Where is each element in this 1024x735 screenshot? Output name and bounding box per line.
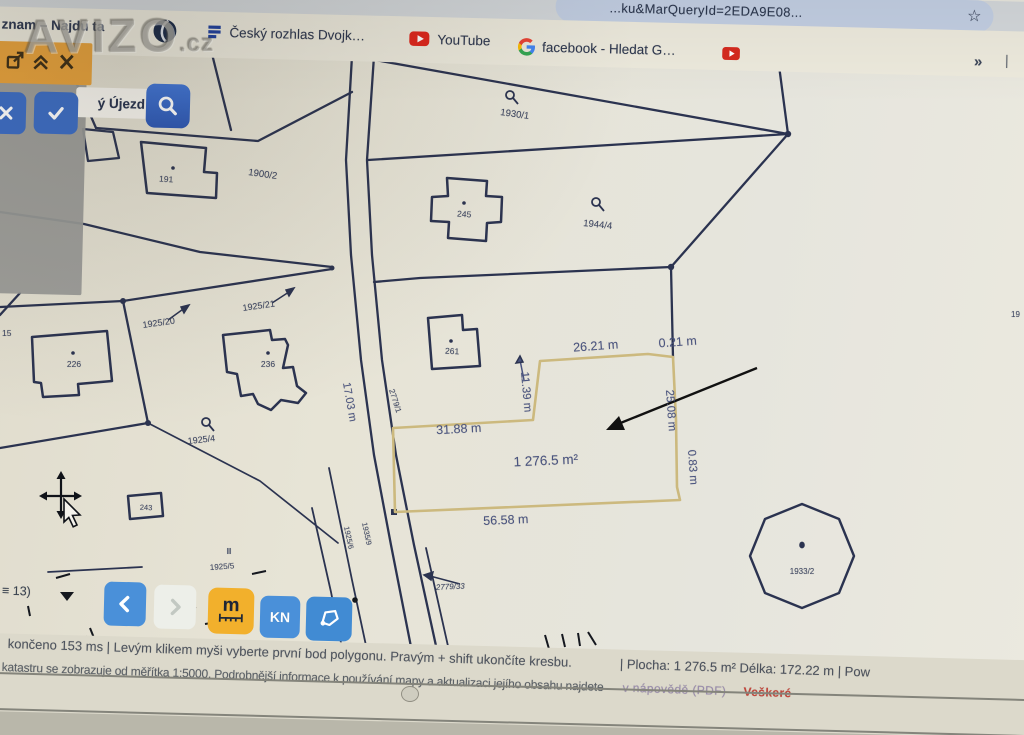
vertex-dots	[71, 131, 805, 603]
search-button[interactable]	[145, 83, 190, 128]
parcel-label-19: 19	[1011, 310, 1020, 319]
google-icon	[517, 37, 536, 56]
parcel-boundaries	[0, 50, 788, 655]
close-icon	[0, 102, 17, 125]
bookmark-label: facebook - Hledat G…	[542, 40, 676, 58]
boundary	[212, 54, 231, 130]
parcel-label-1930-1: 1930/1	[500, 107, 530, 122]
building-label-226: 226	[67, 359, 81, 369]
mouse-pointer-icon	[64, 499, 80, 527]
bookmark-star-icon[interactable]: ☆	[967, 6, 994, 27]
building-label-243: 243	[140, 503, 153, 512]
building-191	[141, 142, 217, 198]
parcel-label-1925-21: 1925/21	[242, 299, 276, 313]
bookmark-cesky-rozhlas[interactable]: Český rozhlas Dvojk…	[206, 23, 365, 45]
building-label-245: 245	[457, 209, 472, 220]
open-external-icon[interactable]	[4, 49, 27, 77]
bookmark-seznam[interactable]: znam – Najdu ta	[1, 17, 104, 35]
map-toolbar-orange	[0, 41, 92, 86]
boundary	[368, 134, 788, 160]
boundary	[374, 267, 671, 282]
check-icon	[45, 102, 68, 125]
boundary	[48, 567, 142, 572]
address-text: ...ku&MarQueryId=2EDA9E08...	[555, 0, 967, 24]
scrollbar-knob[interactable]	[401, 686, 419, 702]
pointer-arrow	[606, 368, 757, 430]
bookmarks-separator: |	[1005, 52, 1009, 68]
move-cursor-icon	[39, 471, 82, 527]
confirm-button[interactable]	[33, 91, 78, 134]
kn-layer-button[interactable]: KN	[259, 596, 300, 639]
parcel-label-1925-4: 1925/4	[187, 433, 215, 446]
measure-tool-label: m	[223, 598, 240, 612]
boundary	[671, 134, 788, 267]
measure-left-vertical: 11.39 m	[518, 371, 534, 413]
layer-menu-label[interactable]: ≡ 13)	[2, 584, 31, 599]
collapse-up-icon[interactable]	[30, 49, 53, 77]
boundary	[375, 60, 788, 134]
youtube-icon	[407, 28, 431, 49]
cancel-button[interactable]	[0, 92, 27, 135]
parcel-label-2779-33: 2779/33	[435, 581, 466, 592]
chevron-left-icon	[114, 593, 137, 616]
play-favicon[interactable]	[721, 46, 742, 67]
back-button[interactable]	[103, 581, 146, 626]
boundary	[0, 423, 148, 448]
measure-right: 25.08 m	[663, 389, 678, 431]
radio-stripes-icon	[206, 23, 223, 41]
road-line-left	[346, 56, 412, 652]
building-label-191: 191	[159, 174, 174, 185]
parcel-label-1944-4: 1944/4	[583, 218, 613, 232]
parcel-label-15: 15	[2, 328, 12, 338]
map-mark-II: II	[227, 547, 231, 556]
small-parcel	[83, 129, 119, 161]
parcel-label-1925-20: 1925/20	[142, 316, 176, 330]
kn-label: KN	[270, 609, 291, 625]
bookmark-youtube[interactable]: YouTube	[407, 28, 491, 50]
bookmarks-overflow-chevron[interactable]: »	[974, 53, 983, 70]
building-label-236: 236	[261, 359, 275, 369]
measure-top: 26.21 m	[573, 337, 619, 354]
bookmark-label: Český rozhlas Dvojk…	[229, 25, 365, 43]
road-line-extra	[426, 548, 450, 655]
measure-bottom: 56.58 m	[483, 512, 529, 528]
measure-area: 1 276.5 m²	[513, 452, 579, 470]
measure-middle: 31.88 m	[436, 421, 482, 437]
search-input[interactable]: ý Újezd	[76, 87, 151, 119]
measure-tool-button[interactable]: m	[207, 587, 254, 634]
globe-favicon[interactable]	[151, 17, 179, 50]
measure-road-edge: 17.03 m	[340, 381, 359, 422]
parcel-label-1935-9: 1935/9	[360, 522, 374, 546]
building-label-261: 261	[445, 346, 460, 357]
polygon-tool-button[interactable]	[305, 596, 352, 641]
building-236	[223, 330, 306, 410]
buildings	[32, 142, 854, 608]
bookmark-facebook[interactable]: facebook - Hledat G…	[517, 37, 676, 60]
close-icon[interactable]	[56, 50, 79, 78]
search-input-value: ý Újezd	[98, 95, 146, 111]
parcel-label-1925-5: 1925/5	[210, 561, 236, 572]
boundary	[148, 423, 338, 543]
parcel-label-1933-2: 1933/2	[790, 567, 815, 576]
screen-photo: 1930/1 1944/4 1900/2 191 245 261 226 236…	[0, 0, 1024, 735]
bookmark-label: YouTube	[437, 32, 490, 48]
dropdown-arrow-icon[interactable]	[60, 592, 74, 601]
octagon-parcel-1933-2	[750, 504, 854, 608]
measure-right-bottom: 0.83 m	[685, 449, 699, 485]
measure-top-right: 0.21 m	[658, 334, 697, 351]
forward-button[interactable]	[153, 584, 196, 629]
polygon-lasso-icon	[316, 606, 343, 633]
boundary	[0, 293, 20, 315]
road-line-right	[367, 56, 438, 655]
search-icon	[156, 94, 181, 119]
parcel-label-1900-2: 1900/2	[248, 167, 278, 182]
chevron-right-icon	[164, 596, 187, 619]
well-symbol	[799, 542, 805, 549]
landuse-symbols	[202, 91, 604, 431]
ruler-icon	[217, 612, 245, 624]
building-261	[428, 315, 480, 369]
